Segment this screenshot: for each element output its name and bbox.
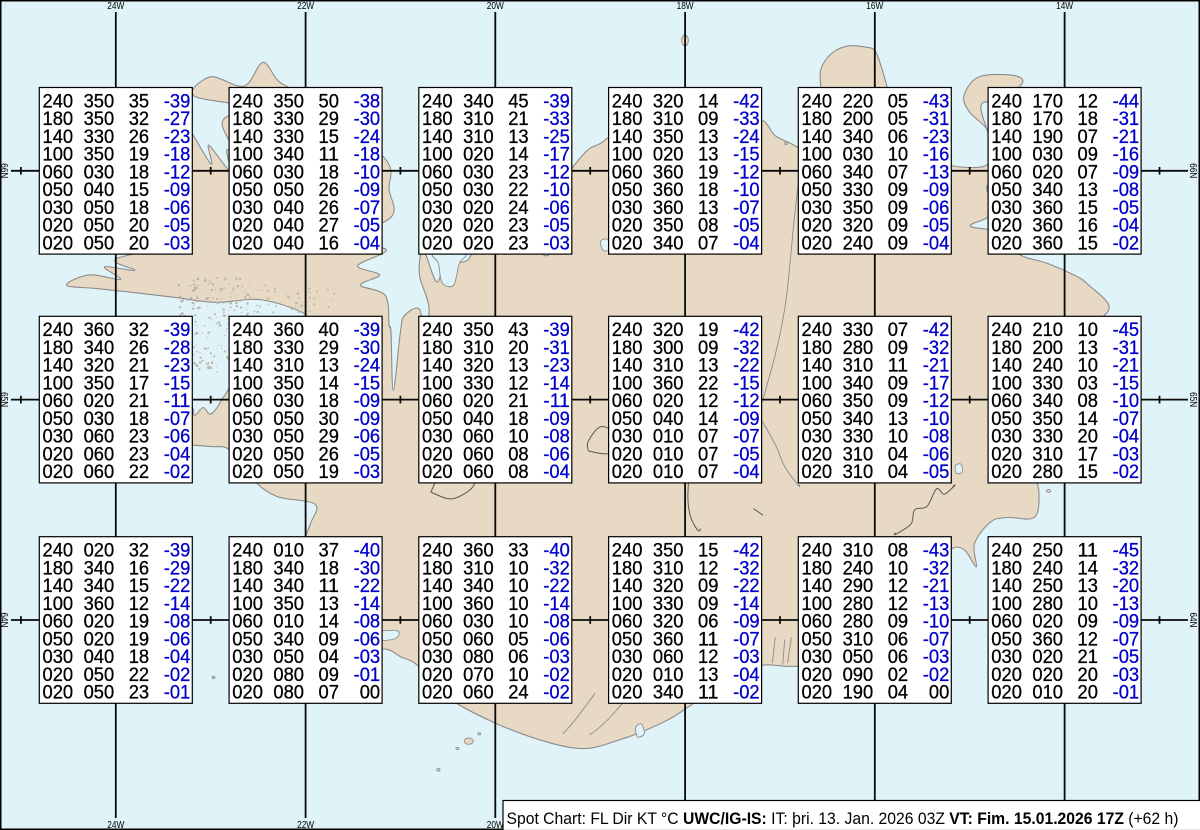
svg-text:24W: 24W [107, 1, 124, 12]
svg-text:22W: 22W [297, 1, 314, 12]
svg-text:64N: 64N [1187, 613, 1198, 628]
svg-text:Spot Chart: FL Dir KT °C: Spot Chart: FL Dir KT °C [507, 809, 684, 828]
svg-text:16W: 16W [866, 1, 883, 12]
svg-text:18W: 18W [677, 1, 694, 12]
svg-text:VT: Fim. 15.01.2026 17Z: VT: Fim. 15.01.2026 17Z [949, 809, 1124, 828]
svg-text:UWC/IG-IS:: UWC/IG-IS: [683, 809, 767, 828]
svg-text:IT: þri. 13. Jan. 2026 03Z: IT: þri. 13. Jan. 2026 03Z [767, 809, 950, 828]
svg-text:(+62 h): (+62 h) [1124, 809, 1179, 828]
svg-text:65N: 65N [1187, 392, 1198, 407]
svg-text:66N: 66N [1187, 163, 1198, 178]
svg-text:20W: 20W [487, 1, 504, 12]
svg-text:14W: 14W [1056, 1, 1073, 12]
